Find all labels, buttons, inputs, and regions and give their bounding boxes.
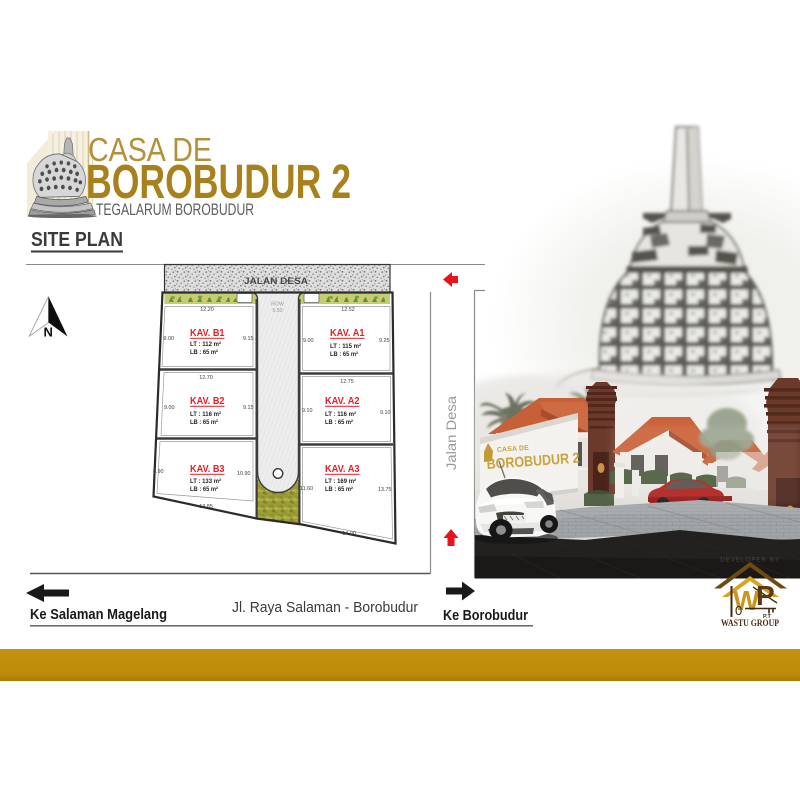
svg-text:0: 0 xyxy=(735,603,742,618)
svg-text:WASTU GROUP: WASTU GROUP xyxy=(721,619,779,629)
svg-text:P: P xyxy=(756,580,775,611)
